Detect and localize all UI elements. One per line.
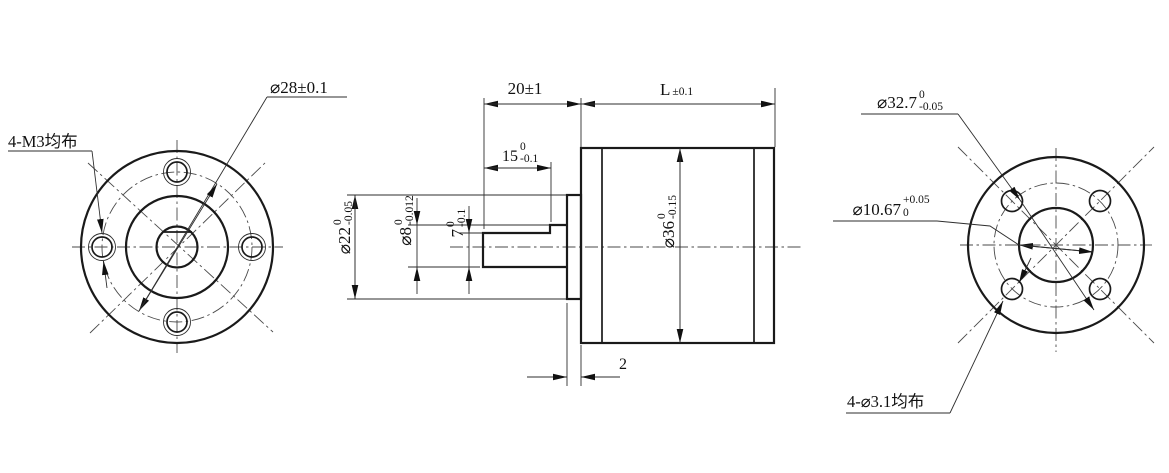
- dim-tol-lower: -0.1: [520, 153, 538, 165]
- technical-drawing: ⌀28±0.1 4-M3均布: [0, 0, 1169, 473]
- dim-label-22: ⌀22: [335, 227, 354, 254]
- callout-label-3-1: 4-⌀3.1均布: [847, 392, 924, 411]
- dim-tol-upper: 0: [520, 141, 526, 153]
- dim-tol-lower: -0.012: [404, 195, 416, 225]
- dim-label-bolt-circle: ⌀28±0.1: [270, 78, 328, 97]
- dim-label-8: ⌀8: [396, 227, 415, 246]
- dim-label-10-67: ⌀10.67: [853, 200, 902, 219]
- dim-tol-lower: -0.15: [667, 195, 679, 219]
- dim-label-2: 2: [619, 356, 627, 373]
- dim-label-15: 15: [502, 148, 518, 165]
- dim-tol-lower: -0.1: [456, 209, 468, 227]
- dim-tol-upper: +0.05: [903, 194, 930, 206]
- dim-tol-lower: -0.05: [343, 201, 355, 225]
- dim-tol-lower: -0.05: [919, 101, 943, 113]
- drawing-background: [0, 0, 1169, 473]
- callout-label-m3: 4-M3均布: [8, 132, 78, 151]
- dim-label-32-7: ⌀32.7: [877, 93, 917, 112]
- drawing-canvas: ⌀28±0.1 4-M3均布: [0, 0, 1169, 473]
- dim-label-7: 7: [448, 229, 467, 238]
- dim-tol-lower: 0: [903, 207, 909, 219]
- dim-label-36: ⌀36: [659, 221, 678, 248]
- dim-label-20: 20±1: [508, 79, 543, 98]
- dim-tol-upper: 0: [919, 89, 925, 101]
